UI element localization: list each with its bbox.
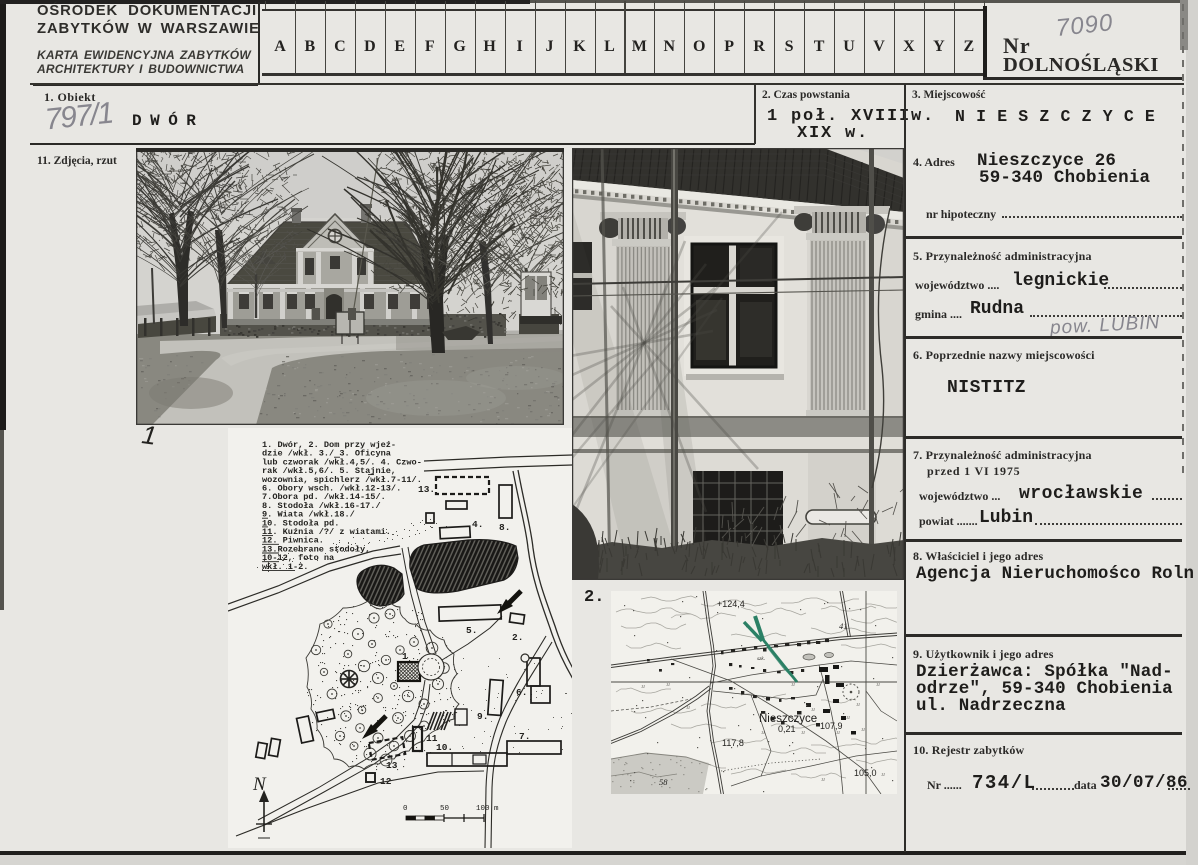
svg-text:11: 11 [811, 707, 815, 712]
svg-text:1: 1 [402, 651, 408, 662]
svg-text:11: 11 [791, 682, 795, 687]
svg-text:11: 11 [856, 702, 860, 707]
svg-text:11: 11 [876, 682, 880, 687]
svg-text:11: 11 [666, 682, 670, 687]
svg-text:11: 11 [801, 730, 805, 735]
svg-text:7.: 7. [519, 731, 530, 742]
svg-text:41: 41 [839, 621, 848, 631]
svg-text:12: 12 [380, 776, 392, 787]
svg-text:11: 11 [761, 730, 765, 735]
svg-text:4.: 4. [472, 519, 483, 530]
svg-text:0: 0 [403, 805, 408, 813]
svg-text:50: 50 [440, 805, 450, 813]
svg-text:0,21: 0,21 [778, 724, 796, 734]
svg-text:100 m: 100 m [476, 805, 499, 813]
svg-text:13.: 13. [418, 484, 435, 495]
svg-text:11: 11 [641, 684, 645, 689]
svg-text:+124,4: +124,4 [717, 599, 745, 609]
svg-text:szk.: szk. [757, 656, 765, 662]
svg-text:5.: 5. [466, 625, 477, 636]
svg-text:10.: 10. [436, 742, 453, 753]
svg-text:2.: 2. [512, 632, 523, 643]
svg-text:58: 58 [659, 777, 668, 787]
svg-text:11: 11 [821, 777, 825, 782]
svg-text:117,8: 117,8 [722, 738, 744, 748]
svg-text:105,0: 105,0 [854, 768, 877, 778]
svg-text:11: 11 [426, 733, 438, 744]
svg-text:8.: 8. [499, 522, 510, 533]
svg-text:11: 11 [846, 715, 850, 720]
svg-text:107,9: 107,9 [820, 721, 843, 731]
svg-text:13: 13 [386, 760, 398, 771]
svg-text:11: 11 [881, 772, 885, 777]
svg-text:9.: 9. [477, 711, 488, 722]
svg-text:11: 11 [861, 727, 865, 732]
svg-text:6.: 6. [516, 687, 527, 698]
svg-text:11: 11 [686, 705, 690, 710]
